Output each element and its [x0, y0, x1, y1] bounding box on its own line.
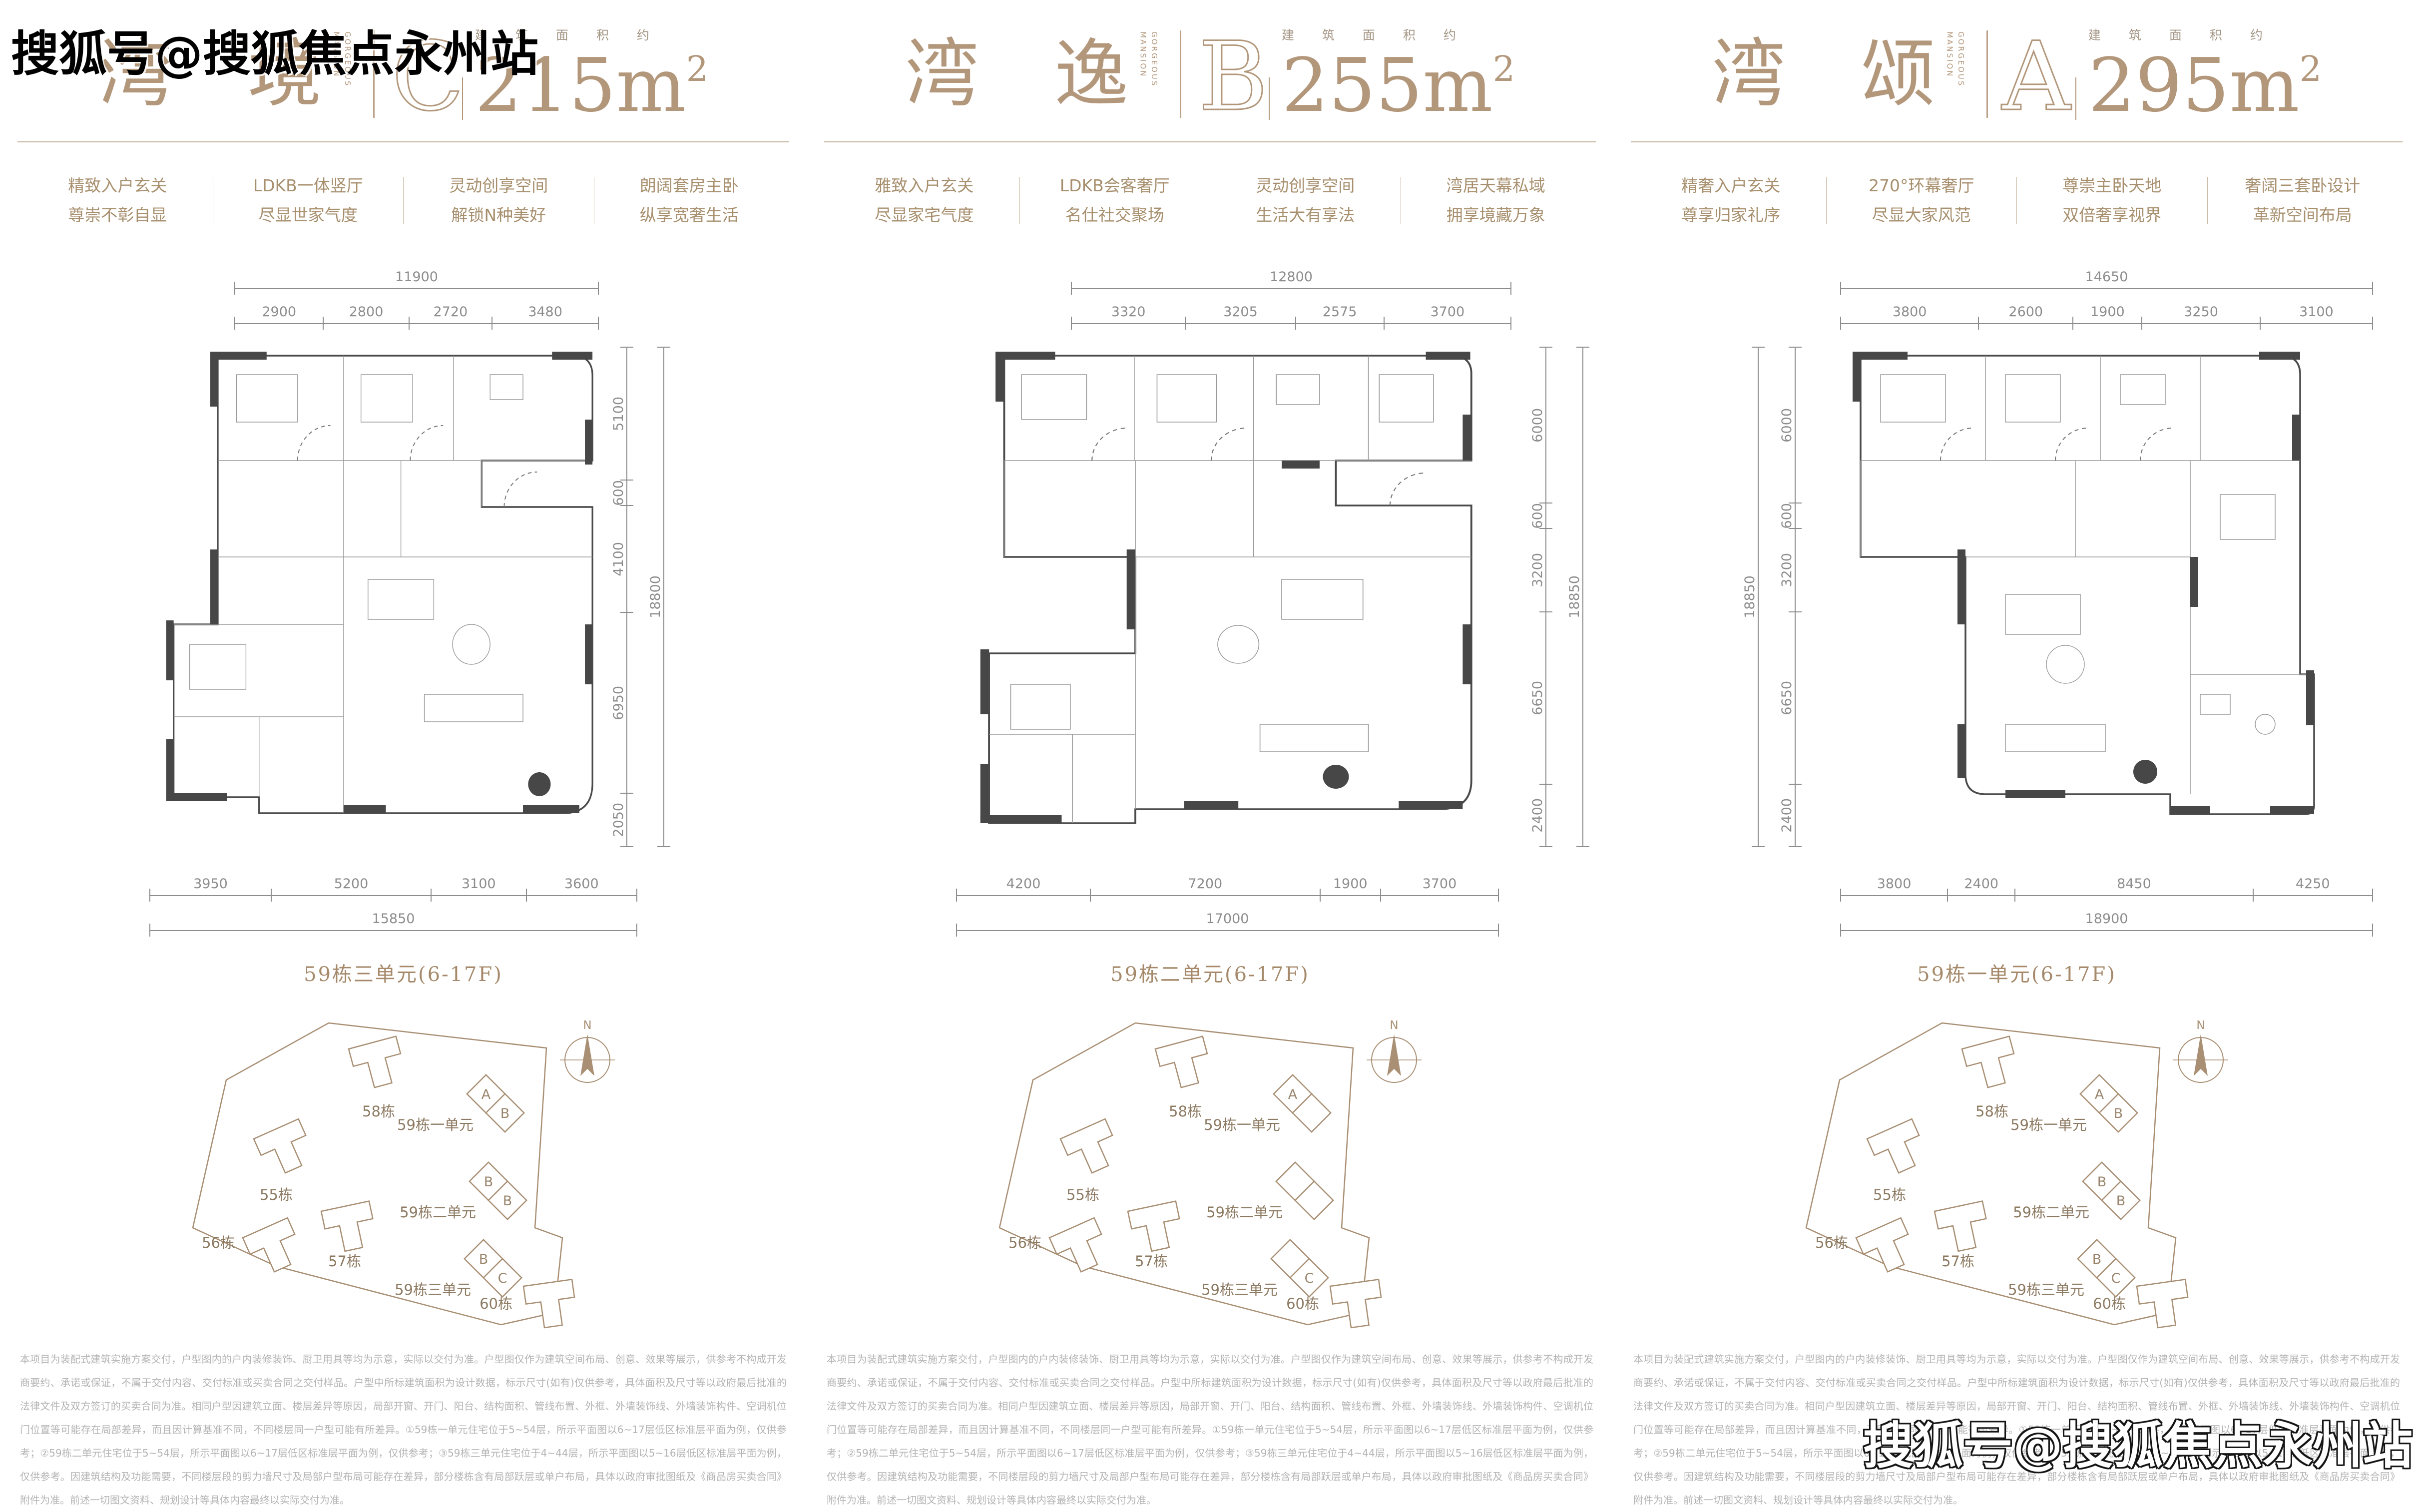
dim-segment: 4250 — [2253, 873, 2373, 895]
unit-cell-letter: B — [2116, 1193, 2125, 1209]
feature-item: 灵动创享空间生活大有享法 — [1210, 171, 1401, 230]
area-block: 建筑面积约 295m2 — [2088, 25, 2322, 122]
dim-segment: 3200 — [1773, 528, 1795, 611]
building-60 — [2137, 1279, 2191, 1330]
dim-segment: 4200 — [957, 873, 1090, 895]
building-label: 60栋 — [1286, 1295, 1319, 1312]
building-57 — [1128, 1201, 1185, 1254]
unit-cell-letter: A — [1288, 1087, 1297, 1102]
dim-segment: 3800 — [1841, 301, 1978, 323]
area-value: 255m2 — [1282, 48, 1515, 122]
dim-segment: 2720 — [409, 301, 492, 323]
area-caption: 建筑面积约 — [2088, 25, 2291, 43]
plan-subtitle-en: GORGEOUS MANSION — [1137, 31, 1160, 116]
unit-59-1: A B 59栋一单元 — [397, 1075, 524, 1133]
dim-segment: 8450 — [2015, 873, 2253, 895]
plan-header: 湾 逸 GORGEOUS MANSION B 建筑面积约 255m2 — [807, 14, 1613, 134]
svg-text:N: N — [583, 1019, 591, 1032]
feature-item: 朗阔套房主卧纵享宽奢生活 — [594, 171, 785, 230]
feature-item: LDKB一体竖厅尽显世家气度 — [213, 171, 404, 230]
feature-item: 雅致入户玄关尽显家宅气度 — [829, 171, 1019, 230]
unit-label: 59栋三单元 — [1201, 1281, 1278, 1298]
dim-total-chain: 12800 — [1071, 266, 1511, 289]
dim-segment: 2400 — [1773, 784, 1795, 847]
dim-total-chain: 11900 — [235, 266, 598, 289]
dim-total: 12800 — [1071, 266, 1511, 288]
dim-segment: 3950 — [150, 873, 271, 895]
feature-item: 尊崇主卧天地双倍奢享视界 — [2017, 171, 2207, 230]
unit-59-3: B C 59栋三单元 — [1201, 1240, 1328, 1298]
unit-cell-letter: B — [1290, 1174, 1300, 1190]
dim-segment: 2600 — [1978, 301, 2073, 323]
plan-bottom-dimensions: 3800240084504250 18900 — [1841, 873, 2373, 943]
svg-text:N: N — [1390, 1019, 1398, 1032]
svg-text:B: B — [1198, 21, 1268, 132]
dim-segment-chain: 6000600320066502400 — [1523, 347, 1546, 847]
plan-title: 湾 逸 — [905, 37, 1154, 111]
site-plan: 58栋 55栋 56栋 57栋 60栋 A B 59栋一单元 B B 59栋二单… — [179, 1014, 628, 1339]
unit-label: 59栋三单元 — [2008, 1281, 2084, 1298]
unit-cell-letter: B — [1309, 1193, 1319, 1209]
unit-label: 59栋一单元 — [1204, 1116, 1280, 1133]
header-rule — [17, 141, 789, 142]
building-label: 60栋 — [480, 1295, 512, 1312]
dim-segment: 2900 — [235, 301, 323, 323]
feature-item: 奢阔三套卧设计革新空间布局 — [2208, 171, 2398, 230]
dim-segment: 6000 — [1773, 347, 1795, 503]
building-label: 58栋 — [1169, 1103, 1202, 1120]
feature-item: LDKB会客奢厅名仕社交聚场 — [1020, 171, 1210, 230]
building-57 — [1935, 1201, 1991, 1254]
plan-bottom-dimensions: 3950520031003600 15850 — [150, 873, 637, 943]
unit-59-1: A B 59栋一单元 — [1204, 1075, 1331, 1133]
column-wansong-a: 湾 颂 GORGEOUS MANSION A 建筑面积约 295m2 精奢入户玄… — [1613, 0, 2420, 1499]
unit-cell-letter: C — [2111, 1271, 2120, 1286]
header-divider — [1986, 30, 1988, 118]
floor-plan-drawing — [147, 345, 617, 849]
unit-59-1-highlighted: A B 59栋一单元 — [2010, 1075, 2137, 1133]
dim-segment: 6650 — [1523, 612, 1545, 785]
unit-59-3: B C 59栋三单元 — [2008, 1240, 2135, 1298]
dim-segment-chain: 3950520031003600 — [150, 873, 637, 896]
building-56 — [1856, 1218, 1919, 1278]
dim-segment: 6000 — [1523, 347, 1545, 503]
plan-subtitle-en: GORGEOUS MANSION — [1944, 31, 1966, 116]
unit-label: 59栋一单元 — [397, 1116, 474, 1133]
dim-segment: 3200 — [1523, 528, 1545, 611]
plan-side-dimensions: 6000600320066502400 18850 — [1523, 347, 1583, 847]
dim-total-chain: 17000 — [957, 908, 1498, 931]
unit-label: 59栋二单元(6-17F) — [807, 958, 1613, 987]
unit-cell-letter: C — [497, 1271, 507, 1286]
building-label: 57栋 — [1135, 1253, 1168, 1270]
unit-label: 59栋二单元 — [2013, 1204, 2089, 1221]
dim-segment: 4100 — [604, 505, 626, 612]
area-caption: 建筑面积约 — [1282, 25, 1484, 43]
unit-cell-letter: B — [1285, 1252, 1295, 1267]
area-value: 295m2 — [2088, 48, 2322, 122]
unit-label: 59栋一单元 — [2010, 1116, 2087, 1133]
dim-segment: 3100 — [431, 873, 526, 895]
dim-segment: 7200 — [1090, 873, 1320, 895]
dim-segment: 3480 — [492, 301, 598, 323]
dim-segment: 3250 — [2142, 301, 2260, 323]
svg-text:N: N — [2196, 1019, 2205, 1032]
site-plan: 58栋 55栋 56栋 57栋 60栋 A B 59栋一单元 B B 59栋二单… — [985, 1014, 1435, 1339]
dim-segment: 2400 — [1523, 784, 1545, 847]
building-label: 56栋 — [1008, 1234, 1041, 1251]
building-60 — [1330, 1279, 1385, 1330]
header-rule — [824, 141, 1596, 142]
unit-cell-letter: B — [2097, 1174, 2106, 1190]
unit-label: 59栋二单元 — [400, 1204, 476, 1221]
building-58 — [1962, 1036, 2020, 1091]
dim-total: 18850 — [1560, 347, 1582, 847]
header-divider — [1180, 30, 1181, 118]
dim-segment: 600 — [1773, 503, 1795, 529]
dim-segment-chain: 3320320525753700 — [1071, 301, 1511, 324]
unit-59-3-highlighted: B C 59栋三单元 — [395, 1240, 521, 1298]
dim-total: 18800 — [641, 347, 663, 847]
north-compass-icon: N — [1367, 1019, 1422, 1082]
unit-cell-letter: B — [2113, 1106, 2123, 1121]
plan-side-dimensions: 18850 6000600320066502400 — [1736, 347, 1796, 847]
dim-segment: 5200 — [271, 873, 431, 895]
building-label: 56栋 — [1815, 1234, 1848, 1251]
floor-plan-drawing — [957, 345, 1498, 849]
building-57 — [321, 1201, 378, 1254]
unit-cell-letter: A — [2094, 1087, 2104, 1102]
floor-plan-drawing — [1841, 345, 2340, 849]
building-55 — [1867, 1119, 1930, 1179]
plan-round-feature — [528, 772, 550, 796]
dim-segment: 2400 — [1947, 873, 2015, 895]
dim-segment-chain: 6000600320066502400 — [1773, 347, 1796, 847]
unit-label: 59栋三单元 — [395, 1281, 471, 1298]
building-55 — [1060, 1119, 1123, 1179]
header-rule — [1631, 141, 2403, 142]
dim-segment-chain: 4200720019003700 — [957, 873, 1498, 896]
dim-segment: 3320 — [1071, 301, 1185, 323]
building-58 — [349, 1036, 407, 1091]
dim-segment: 6650 — [1773, 612, 1795, 785]
dim-total-chain: 18850 — [1560, 347, 1583, 847]
building-label: 56栋 — [202, 1234, 235, 1251]
dim-segment: 600 — [1523, 503, 1545, 529]
unit-cell-letter: B — [500, 1106, 509, 1121]
dim-segment: 3100 — [2260, 301, 2373, 323]
plan-bottom-dimensions: 4200720019003700 17000 — [957, 873, 1498, 943]
building-56 — [243, 1218, 305, 1278]
dim-segment: 3600 — [526, 873, 637, 895]
dim-segment: 3700 — [1381, 873, 1498, 895]
column-wanjing-c: 湾 境 GORGEOUS MANSION C 建筑面积约 215m2 精致入户玄… — [0, 0, 807, 1499]
disclaimer-text: 本项目为装配式建筑实施方案交付，户型图内的户内装修装饰、厨卫用具等均为示意，实际… — [20, 1348, 787, 1512]
plan-title: 湾 颂 — [1712, 37, 1961, 111]
plan-top-dimensions: 12800 3320320525753700 — [1071, 266, 1511, 336]
building-label: 57栋 — [328, 1253, 361, 1270]
feature-item: 270°环幕奢厅尽显大家风范 — [1827, 171, 2017, 230]
site-plan: 58栋 55栋 56栋 57栋 60栋 A B 59栋一单元 B B 59栋二单… — [1792, 1014, 2242, 1339]
unit-59-2: B B 59栋二单元 — [400, 1162, 526, 1221]
unit-cell-letter: B — [484, 1174, 493, 1190]
unit-cell-letter: C — [1304, 1271, 1314, 1286]
dim-total-chain: 15850 — [150, 908, 637, 931]
unit-cell-letter: B — [2092, 1252, 2101, 1267]
plan-header: 湾 颂 GORGEOUS MANSION A 建筑面积约 295m2 — [1613, 14, 2420, 134]
feature-row: 精奢入户玄关尊享归家礼序 270°环幕奢厅尽显大家风范 尊崇主卧天地双倍奢享视界… — [1636, 171, 2398, 230]
dim-total: 15850 — [150, 908, 637, 930]
dim-segment: 600 — [604, 480, 626, 506]
dim-segment: 2575 — [1296, 301, 1384, 323]
building-60 — [523, 1279, 578, 1330]
building-label: 55栋 — [260, 1186, 293, 1203]
unit-label: 59栋三单元(6-17F) — [0, 958, 807, 987]
unit-cell-letter: B — [502, 1193, 512, 1209]
dim-total: 11900 — [235, 266, 598, 288]
plan-round-feature — [2133, 760, 2157, 784]
area-block: 建筑面积约 255m2 — [1282, 25, 1515, 122]
dim-segment: 2050 — [604, 793, 626, 847]
plan-top-dimensions: 14650 38002600190032503100 — [1841, 266, 2373, 336]
dim-segment: 6950 — [604, 612, 626, 793]
dim-segment-chain: 5100600410069502050 — [604, 347, 627, 847]
plan-top-dimensions: 11900 2900280027203480 — [235, 266, 598, 336]
feature-item: 精奢入户玄关尊享归家礼序 — [1636, 171, 1826, 230]
dim-segment-chain: 38002600190032503100 — [1841, 301, 2373, 324]
header-divider-small — [2075, 77, 2076, 120]
disclaimer-text: 本项目为装配式建筑实施方案交付，户型图内的户内装修装饰、厨卫用具等均为示意，实际… — [827, 1348, 1593, 1512]
building-label: 58栋 — [362, 1103, 395, 1120]
dim-segment-chain: 2900280027203480 — [235, 301, 598, 324]
dim-segment: 1900 — [2073, 301, 2142, 323]
building-58 — [1155, 1036, 1214, 1091]
dim-total-chain: 18850 — [1736, 347, 1759, 847]
plan-side-dimensions: 5100600410069502050 18800 — [604, 347, 664, 847]
building-label: 57栋 — [1941, 1253, 1974, 1270]
plan-round-feature — [1323, 765, 1349, 789]
unit-cell-letter: B — [1307, 1106, 1316, 1121]
dim-total: 18900 — [1841, 908, 2373, 930]
dim-segment: 3205 — [1185, 301, 1295, 323]
north-compass-icon: N — [2173, 1019, 2228, 1082]
unit-59-2: B B 59栋二单元 — [2013, 1162, 2140, 1221]
feature-item: 灵动创享空间解锁N种美好 — [404, 171, 594, 230]
sohu-watermark-bottom-right: 搜狐号@搜狐焦点永州站 — [1863, 1405, 2413, 1478]
building-55 — [254, 1119, 316, 1179]
feature-item: 精致入户玄关尊崇不彰自显 — [22, 171, 213, 230]
unit-59-2: B B 59栋二单元 — [1206, 1162, 1333, 1221]
unit-label: 59栋二单元 — [1206, 1204, 1283, 1221]
dim-total-chain: 14650 — [1841, 266, 2373, 289]
unit-cell-letter: A — [481, 1087, 490, 1102]
plan-letter-glyph: A — [2001, 25, 2063, 123]
sohu-watermark-top-left: 搜狐号@搜狐焦点永州站 — [11, 15, 538, 84]
dim-total-chain: 18900 — [1841, 908, 2373, 931]
dim-total: 14650 — [1841, 266, 2373, 288]
unit-cell-letter: B — [479, 1252, 488, 1267]
building-label: 60栋 — [2093, 1295, 2126, 1312]
dim-segment: 3700 — [1384, 301, 1511, 323]
building-56 — [1049, 1218, 1112, 1278]
building-label: 55栋 — [1066, 1186, 1099, 1203]
svg-text:A: A — [2001, 21, 2072, 132]
building-label: 58栋 — [1975, 1103, 2008, 1120]
column-wanyi-b: 湾 逸 GORGEOUS MANSION B 建筑面积约 255m2 雅致入户玄… — [807, 0, 1613, 1499]
dim-total: 17000 — [957, 908, 1498, 930]
feature-row: 精致入户玄关尊崇不彰自显 LDKB一体竖厅尽显世家气度 灵动创享空间解锁N种美好… — [22, 171, 784, 230]
building-label: 55栋 — [1873, 1186, 1906, 1203]
plan-letter-glyph: B — [1194, 25, 1257, 123]
header-divider-small — [1269, 77, 1270, 120]
dim-segment-chain: 3800240084504250 — [1841, 873, 2373, 896]
dim-total: 18850 — [1736, 347, 1758, 847]
feature-row: 雅致入户玄关尽显家宅气度 LDKB会客奢厅名仕社交聚场 灵动创享空间生活大有享法… — [829, 171, 1591, 230]
dim-segment: 1900 — [1320, 873, 1381, 895]
north-compass-icon: N — [560, 1019, 615, 1082]
dim-segment: 5100 — [604, 347, 626, 480]
dim-segment: 2800 — [323, 301, 409, 323]
dim-total-chain: 18800 — [641, 347, 664, 847]
dim-segment: 3800 — [1841, 873, 1947, 895]
feature-item: 湾居天幕私域拥享境藏万象 — [1401, 171, 1591, 230]
unit-label: 59栋一单元(6-17F) — [1613, 958, 2420, 987]
